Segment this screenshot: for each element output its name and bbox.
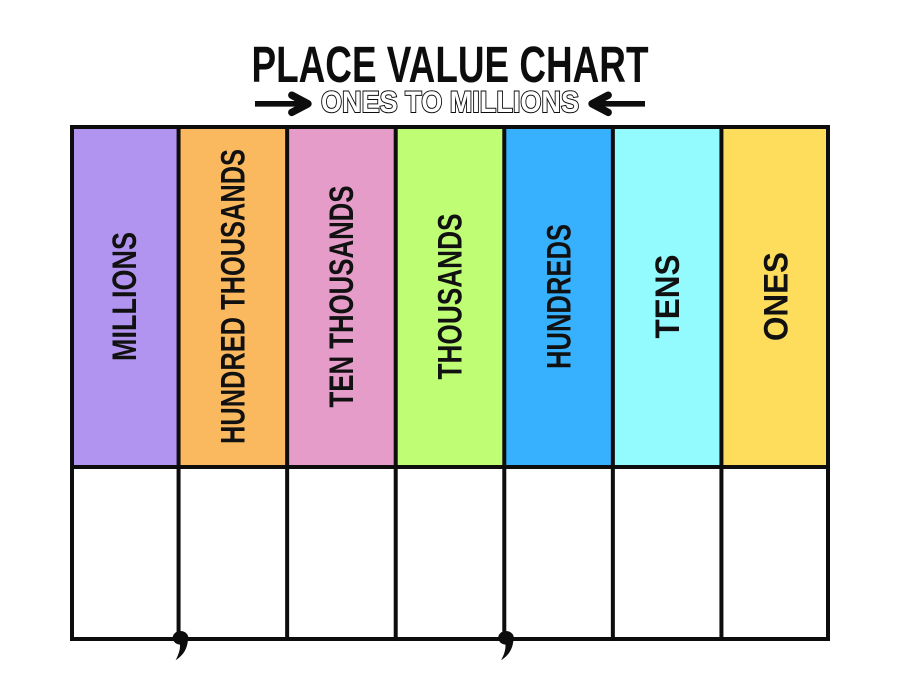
svg-text:TEN THOUSANDS: TEN THOUSANDS <box>323 186 361 408</box>
svg-text:HUNDRED THOUSANDS: HUNDRED THOUSANDS <box>215 149 253 444</box>
svg-text:ONES TO MILLIONS: ONES TO MILLIONS <box>321 86 579 119</box>
svg-text:ONES: ONES <box>757 252 795 341</box>
svg-text:MILLIONS: MILLIONS <box>106 232 144 361</box>
svg-text:PLACE VALUE CHART: PLACE VALUE CHART <box>252 36 649 93</box>
svg-text:HUNDREDS: HUNDREDS <box>540 224 578 369</box>
svg-text:TENS: TENS <box>649 255 687 339</box>
svg-text:THOUSANDS: THOUSANDS <box>432 214 470 380</box>
